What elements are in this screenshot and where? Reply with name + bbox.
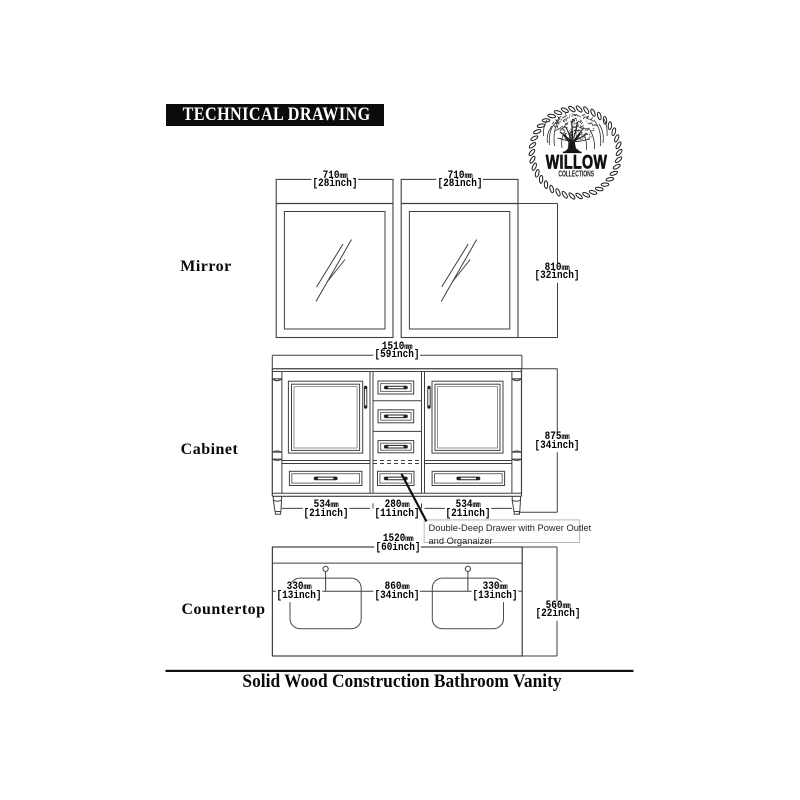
- svg-text:COLLECTIONS: COLLECTIONS: [558, 170, 594, 179]
